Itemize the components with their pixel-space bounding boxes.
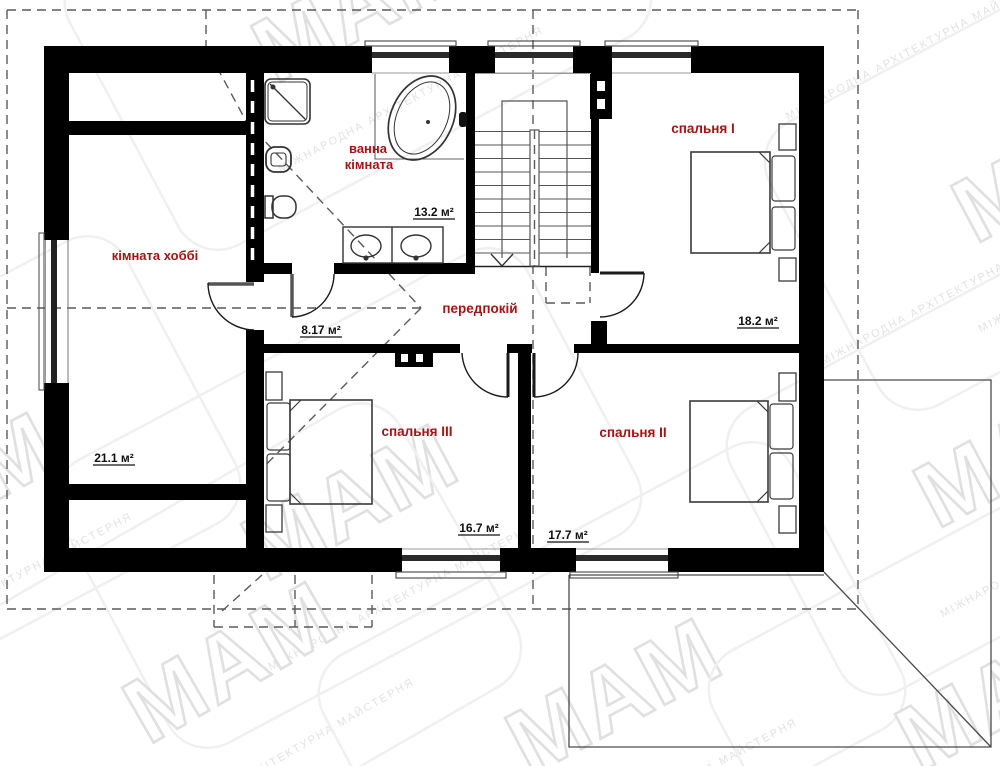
svg-text:спальня II: спальня II	[599, 425, 666, 440]
svg-text:кімната хоббі: кімната хоббі	[112, 248, 199, 263]
svg-text:8.17 м²: 8.17 м²	[301, 323, 341, 337]
svg-text:ванна: ванна	[349, 141, 388, 156]
svg-text:18.2 м²: 18.2 м²	[738, 314, 778, 328]
svg-text:16.7 м²: 16.7 м²	[459, 521, 499, 535]
svg-text:13.2 м²: 13.2 м²	[414, 205, 454, 219]
svg-text:спальня I: спальня I	[671, 121, 735, 136]
svg-text:17.7 м²: 17.7 м²	[548, 528, 588, 542]
svg-text:кімната: кімната	[345, 157, 394, 172]
svg-text:21.1 м²: 21.1 м²	[94, 451, 134, 465]
svg-text:передпокій: передпокій	[442, 301, 517, 316]
svg-text:спальня III: спальня III	[381, 424, 452, 439]
